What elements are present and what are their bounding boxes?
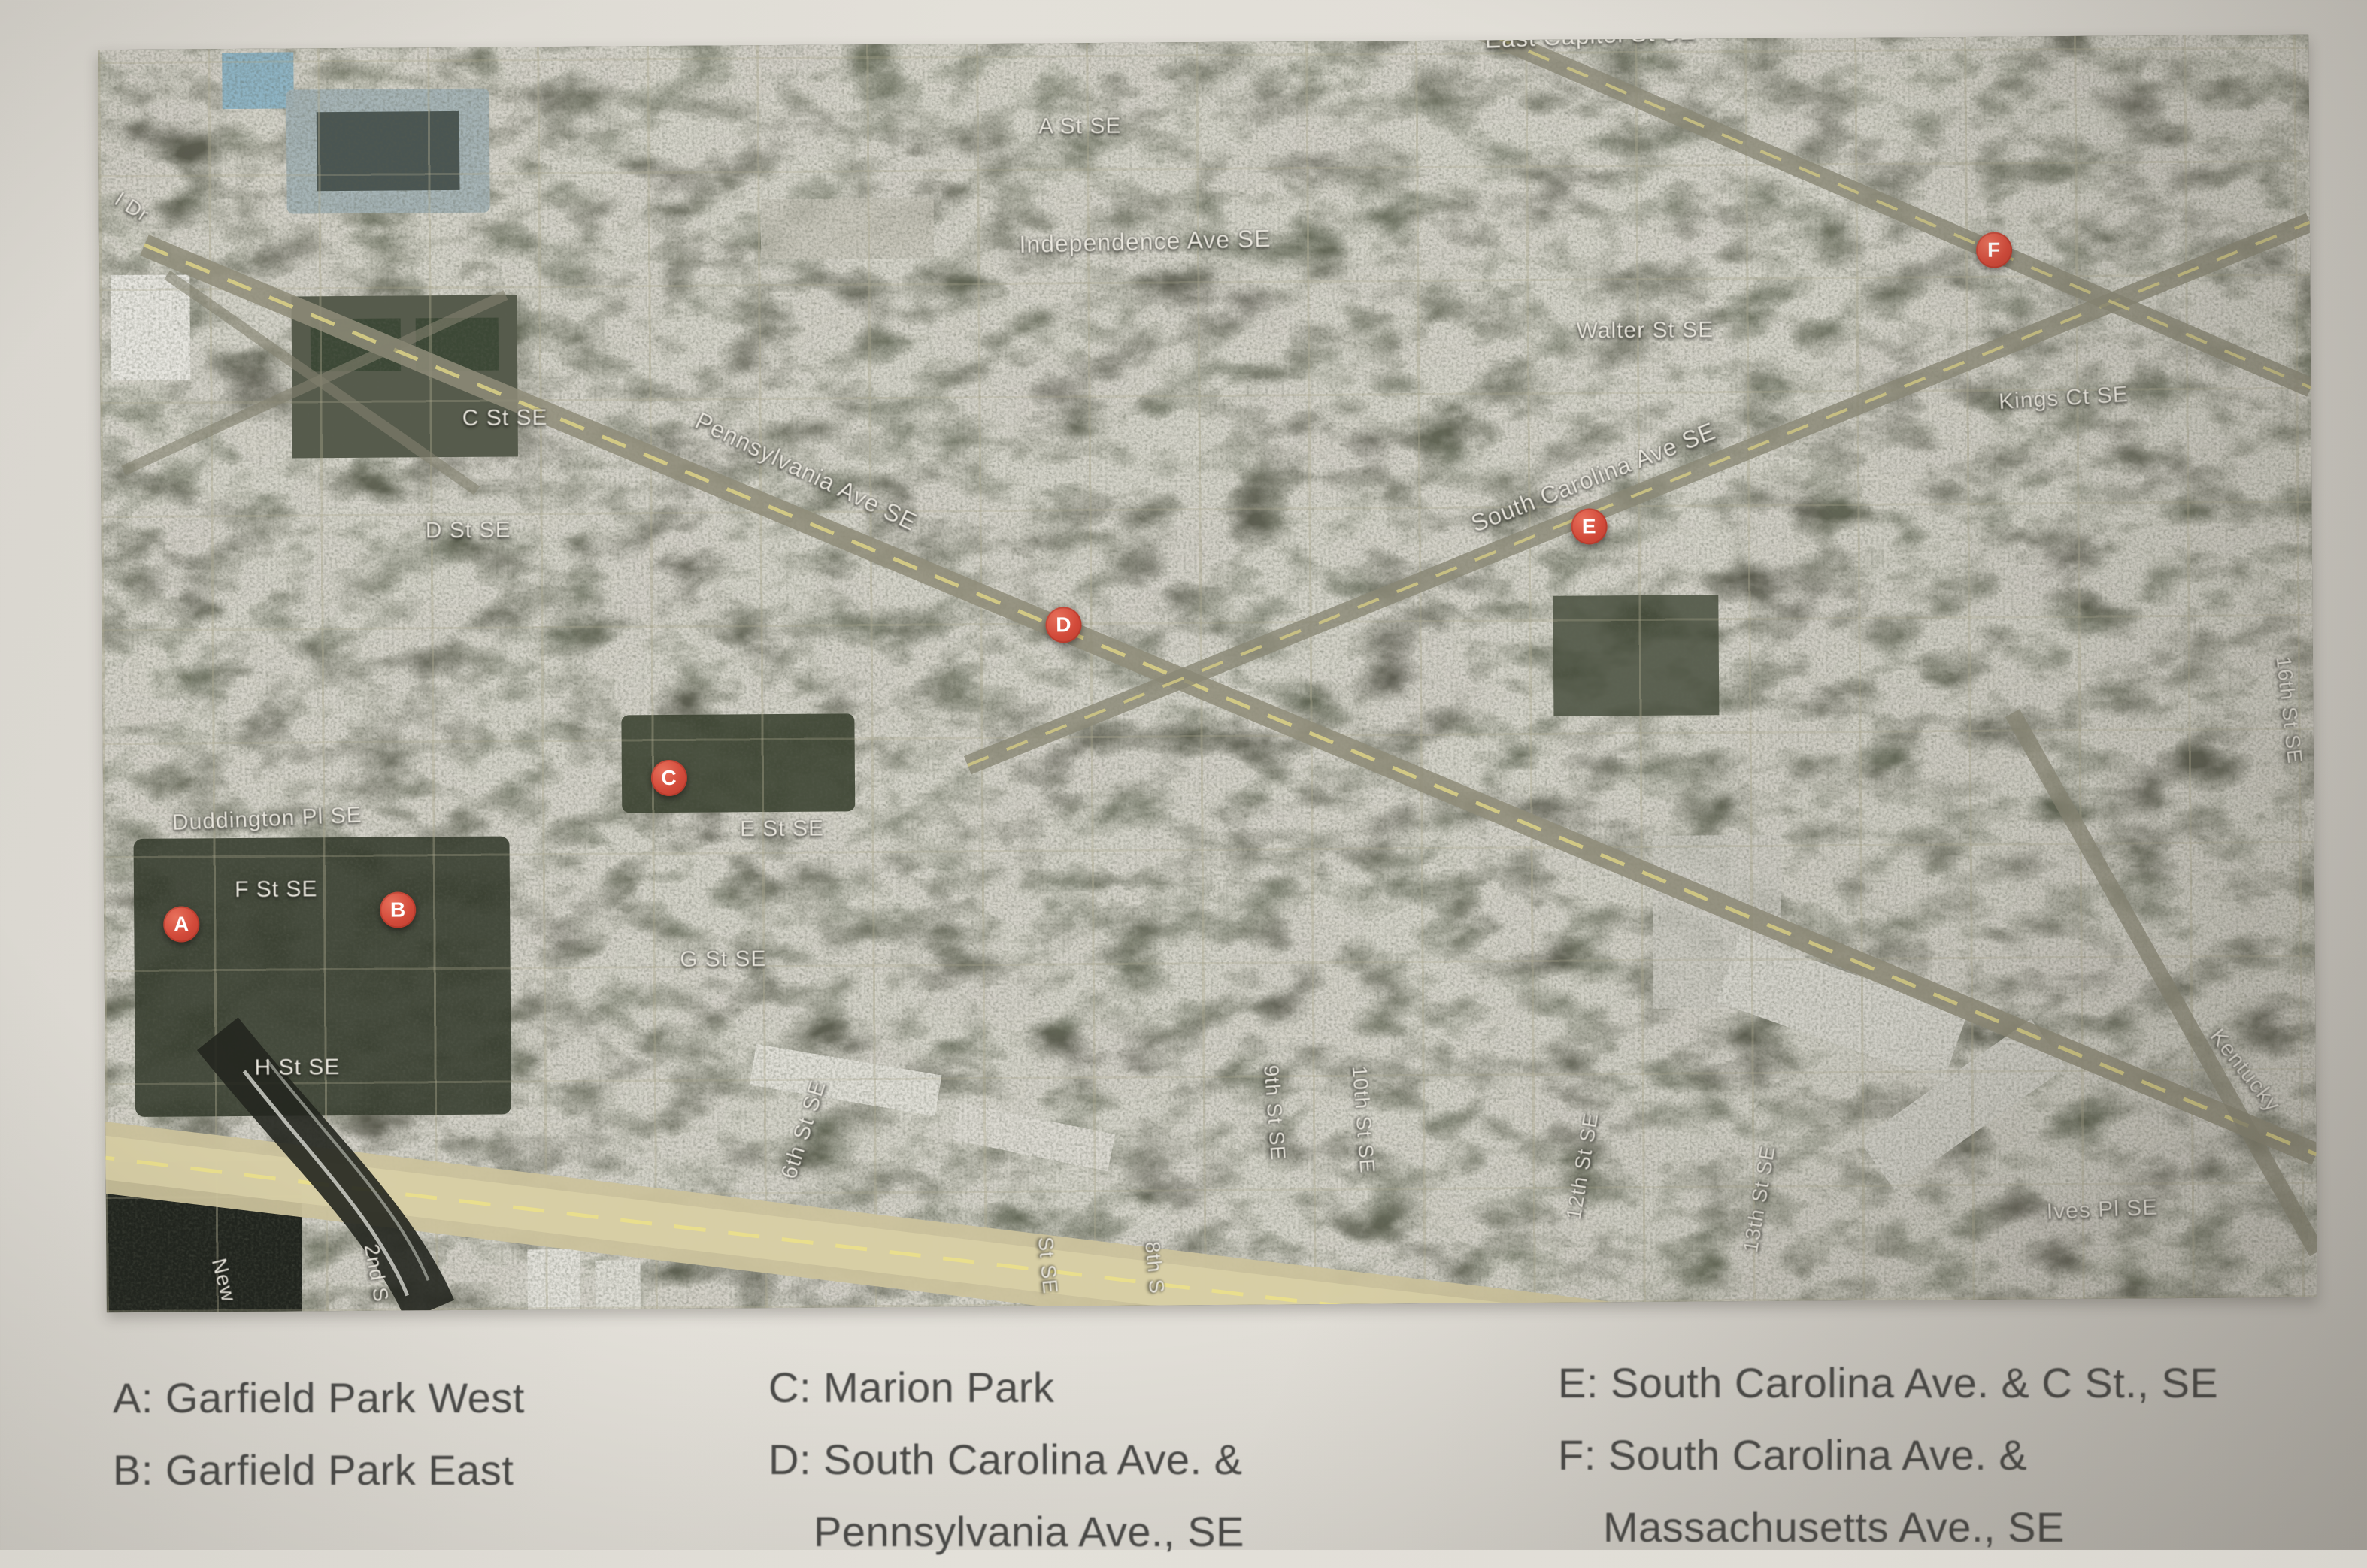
map-marker-d: D [1045, 607, 1081, 643]
map-marker-b: B [380, 892, 416, 928]
legend-entry: A: Garfield Park West [113, 1362, 525, 1434]
map-marker-e: E [1571, 509, 1607, 545]
map-marker-a: A [163, 907, 199, 943]
photo-background: East Capitol St SEA St SEIndependence Av… [0, 0, 2367, 1550]
legend-entry: F: South Carolina Ave. & [1558, 1419, 2218, 1491]
legend-entry: B: Garfield Park East [113, 1434, 525, 1506]
satellite-map: East Capitol St SEA St SEIndependence Av… [98, 35, 2317, 1312]
map-marker-c: C [650, 760, 686, 796]
legend-entry: D: South Carolina Ave. & [768, 1424, 1244, 1496]
legend-column-1: A: Garfield Park WestB: Garfield Park Ea… [113, 1362, 525, 1506]
legend-column-3: E: South Carolina Ave. & C St., SEF: Sou… [1558, 1347, 2218, 1563]
legend-entry: C: Marion Park [768, 1352, 1244, 1424]
street-label: SE [98, 1214, 101, 1247]
legend-entry: E: South Carolina Ave. & C St., SE [1558, 1347, 2218, 1419]
legend-entry: Pennsylvania Ave., SE [768, 1496, 1244, 1568]
map-marker-f: F [1976, 232, 2012, 268]
legend-entry: Massachusetts Ave., SE [1558, 1491, 2218, 1563]
map-markers-layer: ABCDEF [98, 35, 2317, 1312]
legend-column-2: C: Marion ParkD: South Carolina Ave. &Pe… [768, 1352, 1244, 1568]
